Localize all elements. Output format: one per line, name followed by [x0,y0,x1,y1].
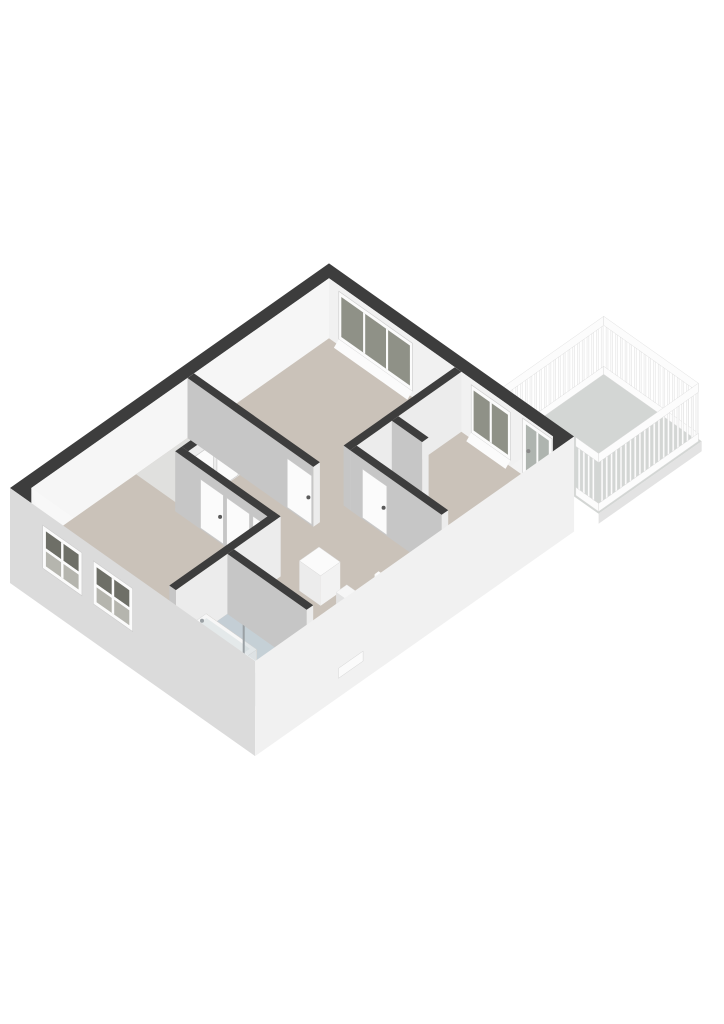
window-mullion [363,312,365,354]
door-handle [200,619,204,623]
window-mullion [490,402,492,444]
door-handle [526,449,530,453]
door-handle [306,495,310,499]
window-mullion [386,329,388,371]
door-handle [218,515,222,519]
floorplan-3d-render [0,0,724,1024]
floorplan-page [0,0,724,1024]
door-handle [382,506,386,510]
